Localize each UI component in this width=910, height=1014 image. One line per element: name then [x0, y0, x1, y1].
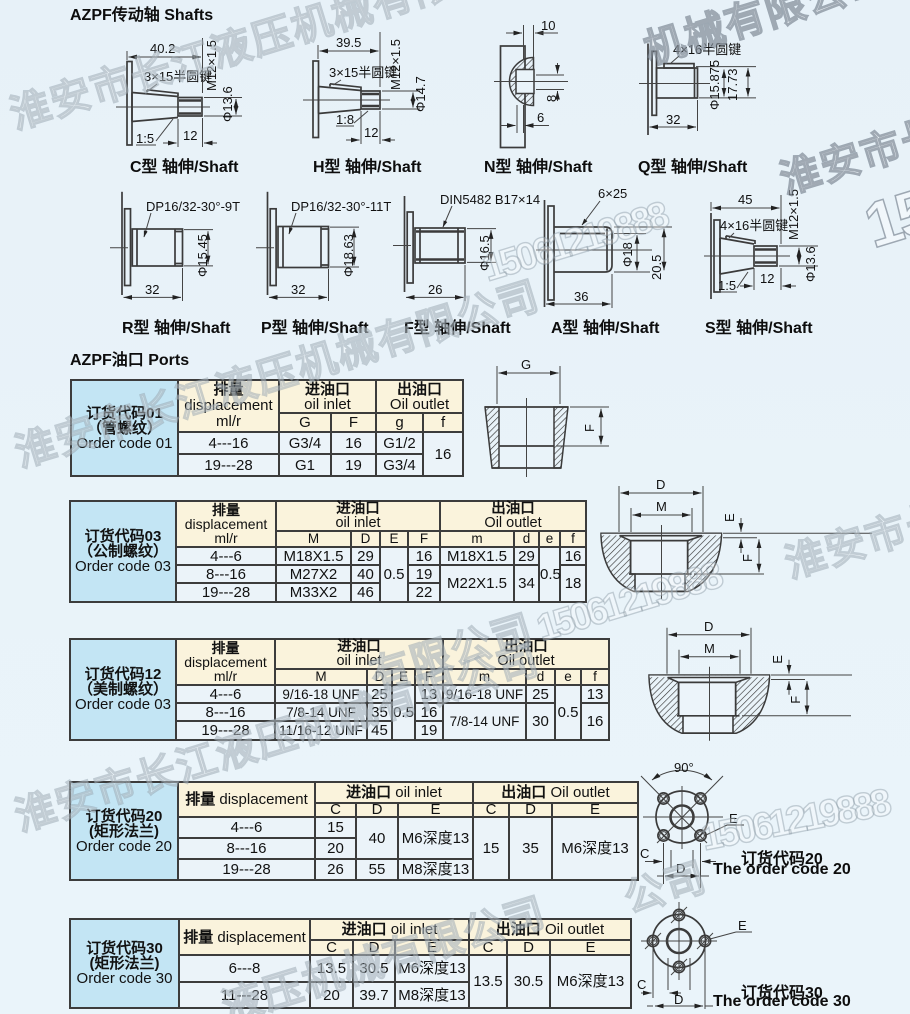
svg-text:F: F [740, 554, 755, 562]
svg-text:DP16/32-30°-11T: DP16/32-30°-11T [291, 199, 391, 214]
svg-text:20.5: 20.5 [649, 255, 664, 280]
svg-text:C: C [640, 846, 649, 861]
svg-text:Φ15.875: Φ15.875 [707, 60, 722, 110]
svg-text:32: 32 [666, 112, 680, 127]
svg-text:17.73: 17.73 [725, 68, 740, 101]
svg-text:Φ15.45: Φ15.45 [195, 234, 210, 277]
svg-text:G: G [521, 357, 531, 372]
svg-text:26: 26 [428, 282, 442, 297]
svg-text:M12×1.5: M12×1.5 [786, 189, 801, 240]
svg-text:DP16/32-30°-9T: DP16/32-30°-9T [146, 199, 240, 214]
svg-text:12: 12 [183, 128, 197, 143]
svg-text:90°: 90° [674, 760, 694, 775]
svg-text:10: 10 [541, 18, 555, 33]
svg-text:Φ16.5: Φ16.5 [477, 235, 492, 271]
svg-text:E: E [738, 918, 747, 933]
svg-text:45: 45 [738, 192, 752, 207]
svg-text:39.5: 39.5 [336, 35, 361, 50]
svg-text:M: M [656, 499, 667, 514]
svg-text:1:5: 1:5 [136, 131, 154, 146]
svg-text:F: F [582, 424, 597, 432]
svg-text:Φ13.6: Φ13.6 [803, 246, 818, 282]
svg-text:3×15半圆键: 3×15半圆键 [144, 69, 212, 84]
svg-text:D: D [674, 992, 683, 1007]
svg-text:4×16半圆键: 4×16半圆键 [720, 218, 788, 233]
svg-text:DIN5482 B17×14: DIN5482 B17×14 [440, 192, 540, 207]
svg-text:Φ14.7: Φ14.7 [413, 76, 428, 112]
svg-text:1:8: 1:8 [336, 112, 354, 127]
svg-text:8: 8 [544, 95, 559, 102]
svg-text:C: C [637, 977, 646, 992]
svg-text:Φ18.63: Φ18.63 [341, 234, 356, 277]
svg-text:D: D [676, 861, 685, 876]
svg-text:40.2: 40.2 [150, 41, 175, 56]
svg-text:E: E [722, 513, 737, 522]
svg-text:12: 12 [760, 271, 774, 286]
svg-text:4×16半圆键: 4×16半圆键 [673, 42, 741, 57]
svg-text:1:5: 1:5 [718, 278, 736, 293]
svg-text:6: 6 [537, 110, 544, 125]
svg-text:12: 12 [364, 125, 378, 140]
svg-text:E: E [729, 811, 738, 826]
svg-text:6×25: 6×25 [598, 186, 627, 201]
svg-text:36: 36 [574, 289, 588, 304]
svg-text:D: D [656, 477, 665, 492]
svg-text:Φ18: Φ18 [620, 242, 635, 267]
svg-text:32: 32 [145, 282, 159, 297]
svg-text:32: 32 [291, 282, 305, 297]
svg-text:3×15半圆键: 3×15半圆键 [329, 65, 397, 80]
svg-text:Φ13.6: Φ13.6 [220, 86, 235, 122]
